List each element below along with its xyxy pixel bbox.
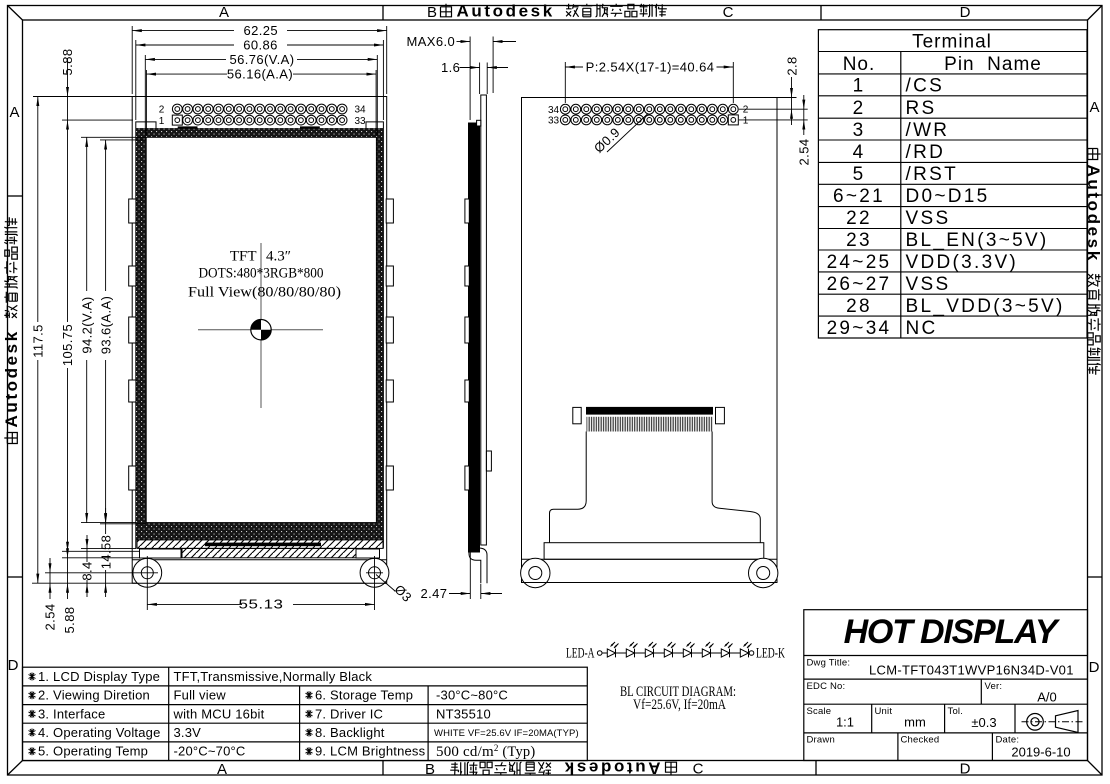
svg-text:22: 22 xyxy=(846,208,872,229)
svg-text:Vf=25.6V, If=20mA: Vf=25.6V, If=20mA xyxy=(633,697,726,713)
svg-text:BL_VDD(3~5V): BL_VDD(3~5V) xyxy=(906,296,1065,317)
svg-text:B: B xyxy=(425,761,435,778)
svg-text:23: 23 xyxy=(846,230,872,251)
svg-text:EDC No:: EDC No: xyxy=(807,681,846,692)
svg-text:60.86: 60.86 xyxy=(243,37,278,52)
svg-text:LED-K: LED-K xyxy=(756,646,785,662)
svg-text:2.8: 2.8 xyxy=(784,56,799,75)
svg-text:5: 5 xyxy=(853,164,866,185)
svg-text:33: 33 xyxy=(548,116,560,127)
svg-text:29~34: 29~34 xyxy=(827,318,892,339)
svg-text:RS: RS xyxy=(906,98,937,119)
svg-text:6~21: 6~21 xyxy=(833,186,885,207)
svg-text:3.3V: 3.3V xyxy=(174,725,202,740)
svg-text:No.: No. xyxy=(843,54,876,75)
svg-text:8.4: 8.4 xyxy=(80,561,95,580)
svg-text:Dwg Title:: Dwg Title: xyxy=(807,658,851,669)
svg-text:TFT: TFT xyxy=(230,249,257,265)
svg-text:with MCU 16bit: with MCU 16bit xyxy=(173,706,265,721)
svg-text:2: 2 xyxy=(853,98,866,119)
svg-text:Full View(80/80/80/80): Full View(80/80/80/80) xyxy=(188,285,341,301)
svg-text:4: 4 xyxy=(853,142,866,163)
svg-text:Drawn: Drawn xyxy=(807,735,835,746)
svg-text:500 cd/m2 (Typ): 500 cd/m2 (Typ) xyxy=(436,743,535,760)
svg-text:7. Driver IC: 7. Driver IC xyxy=(315,706,383,721)
svg-text:2.47: 2.47 xyxy=(421,586,448,601)
svg-text:5.88: 5.88 xyxy=(62,607,77,634)
svg-text:B: B xyxy=(427,4,437,21)
svg-text:/CS: /CS xyxy=(906,76,945,97)
svg-text:24~25: 24~25 xyxy=(827,252,892,273)
svg-text:3: 3 xyxy=(853,120,866,141)
svg-text:Checked: Checked xyxy=(901,735,940,746)
svg-text:D: D xyxy=(8,657,19,674)
svg-text:28: 28 xyxy=(846,296,872,317)
svg-text:LED-A: LED-A xyxy=(566,646,595,662)
svg-text:94.2(V.A): 94.2(V.A) xyxy=(80,296,95,353)
svg-text:C: C xyxy=(723,4,734,21)
svg-text:1: 1 xyxy=(743,116,749,127)
svg-text:LCM-TFT043T1WVP16N34D-V01: LCM-TFT043T1WVP16N34D-V01 xyxy=(869,663,1074,678)
svg-text:D: D xyxy=(960,4,971,21)
svg-text:A/0: A/0 xyxy=(1037,690,1057,705)
svg-text:2: 2 xyxy=(159,105,165,116)
svg-text:5. Operating Temp: 5. Operating Temp xyxy=(38,744,148,759)
svg-text:A: A xyxy=(1089,99,1099,116)
svg-text:55.13: 55.13 xyxy=(239,597,284,612)
svg-text:8. Backlight: 8. Backlight xyxy=(315,725,385,740)
svg-text:A: A xyxy=(219,4,229,21)
svg-text:/WR: /WR xyxy=(906,120,950,141)
svg-text:5.88: 5.88 xyxy=(60,49,75,76)
svg-text:WHITE VF=25.6V IF=20MA(TYP): WHITE VF=25.6V IF=20MA(TYP) xyxy=(434,728,579,739)
svg-text:/RD: /RD xyxy=(906,142,946,163)
svg-text:3. Interface: 3. Interface xyxy=(38,706,105,721)
svg-text:2. Viewing Diretion: 2. Viewing Diretion xyxy=(38,688,150,703)
svg-text:NT35510: NT35510 xyxy=(436,706,491,721)
svg-text:Unit: Unit xyxy=(875,706,893,717)
svg-text:1: 1 xyxy=(853,76,866,97)
svg-text:6. Storage Temp: 6. Storage Temp xyxy=(315,688,413,703)
svg-text:/RST: /RST xyxy=(906,164,958,185)
svg-text:4. Operating Voltage: 4. Operating Voltage xyxy=(38,725,161,740)
svg-text:D0~D15: D0~D15 xyxy=(906,186,990,207)
svg-text:1.6: 1.6 xyxy=(441,60,460,75)
svg-text:Scale: Scale xyxy=(807,706,832,717)
svg-text:1. LCD Display Type: 1. LCD Display Type xyxy=(38,669,160,684)
svg-text:34: 34 xyxy=(548,105,560,116)
svg-text:26~27: 26~27 xyxy=(827,274,892,295)
svg-text:±0.3: ±0.3 xyxy=(971,715,996,730)
svg-text:34: 34 xyxy=(354,105,366,116)
svg-text:Tol.: Tol. xyxy=(948,706,964,717)
svg-text:VSS: VSS xyxy=(906,274,951,295)
svg-text:93.6(A.A): 93.6(A.A) xyxy=(98,296,113,355)
svg-text:33: 33 xyxy=(354,116,366,127)
svg-text:Autodesk: Autodesk xyxy=(457,1,555,20)
svg-text:BL_EN(3~5V): BL_EN(3~5V) xyxy=(906,230,1049,251)
svg-text:Pin Name: Pin Name xyxy=(944,54,1042,75)
svg-text:56.16(A.A): 56.16(A.A) xyxy=(227,67,293,82)
svg-text:A: A xyxy=(217,761,227,778)
svg-text:NC: NC xyxy=(906,318,938,339)
svg-text:D: D xyxy=(960,761,971,778)
svg-text:2.54: 2.54 xyxy=(797,139,812,166)
svg-text:2: 2 xyxy=(743,105,749,116)
svg-text:2019-6-10: 2019-6-10 xyxy=(1011,745,1070,760)
svg-text:4.3″: 4.3″ xyxy=(266,249,291,265)
svg-text:mm: mm xyxy=(904,715,926,730)
svg-text:2.54: 2.54 xyxy=(43,604,58,631)
svg-text:Ver:: Ver: xyxy=(985,681,1003,692)
svg-text:56.76(V.A): 56.76(V.A) xyxy=(230,52,295,67)
svg-text:P:2.54X(17-1)=40.64: P:2.54X(17-1)=40.64 xyxy=(586,59,715,74)
svg-text:117.5: 117.5 xyxy=(31,324,46,358)
svg-text:105.75: 105.75 xyxy=(60,324,75,366)
svg-text:A: A xyxy=(9,104,19,121)
svg-text:C: C xyxy=(693,761,704,778)
svg-text:MAX6.0: MAX6.0 xyxy=(407,34,456,49)
svg-text:VDD(3.3V): VDD(3.3V) xyxy=(906,252,1019,273)
svg-text:62.25: 62.25 xyxy=(244,23,279,38)
svg-text:9. LCM Brightness: 9. LCM Brightness xyxy=(315,744,426,759)
svg-text:-30°C~80°C: -30°C~80°C xyxy=(436,688,508,703)
svg-text:Terminal: Terminal xyxy=(912,32,992,53)
svg-text:1: 1 xyxy=(159,116,165,127)
svg-text:HOT DISPLAY: HOT DISPLAY xyxy=(844,613,1061,651)
svg-text:DOTS:480*3RGB*800: DOTS:480*3RGB*800 xyxy=(199,266,324,282)
svg-text:TFT,Transmissive,Normally Blac: TFT,Transmissive,Normally Black xyxy=(174,669,373,684)
svg-text:14.58: 14.58 xyxy=(98,535,113,570)
svg-text:Full view: Full view xyxy=(174,688,227,703)
svg-text:D: D xyxy=(1089,659,1100,676)
svg-text:VSS: VSS xyxy=(906,208,951,229)
svg-text:1:1: 1:1 xyxy=(836,715,854,730)
svg-text:-20°C~70°C: -20°C~70°C xyxy=(174,744,246,759)
